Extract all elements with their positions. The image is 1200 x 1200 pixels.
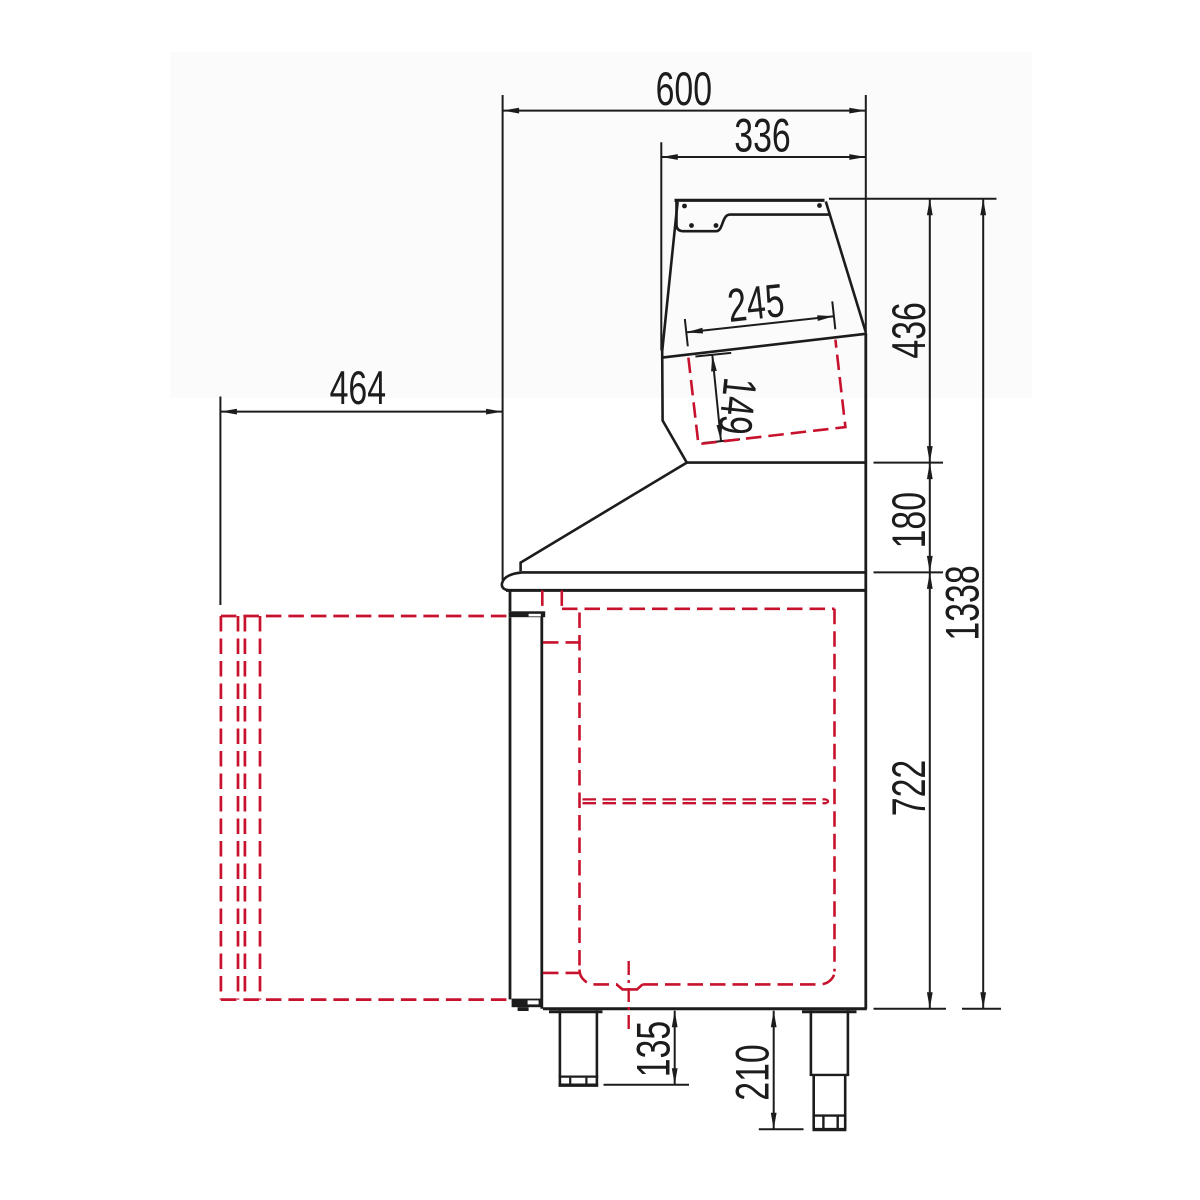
svg-text:245: 245: [725, 274, 787, 333]
svg-text:464: 464: [330, 361, 386, 414]
svg-text:600: 600: [656, 63, 712, 116]
svg-text:1338: 1338: [936, 565, 989, 640]
svg-text:180: 180: [882, 492, 935, 548]
svg-text:436: 436: [882, 302, 935, 358]
svg-text:336: 336: [734, 109, 790, 162]
svg-text:135: 135: [627, 1021, 680, 1077]
svg-text:210: 210: [726, 1044, 779, 1100]
svg-text:722: 722: [882, 760, 935, 816]
svg-text:149: 149: [708, 375, 766, 437]
